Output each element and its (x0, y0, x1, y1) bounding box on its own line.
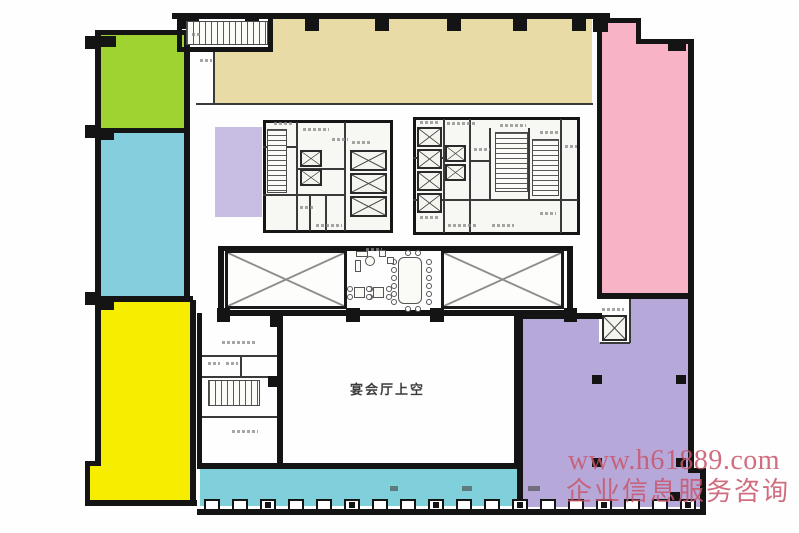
room-label-mark (602, 308, 624, 311)
column (593, 13, 608, 32)
facade-tooth (456, 499, 472, 511)
column (268, 376, 282, 387)
column (270, 316, 282, 327)
partition-line (213, 50, 215, 104)
room-label-mark (274, 122, 292, 125)
partition-line (196, 103, 593, 105)
facade-tooth (540, 499, 556, 511)
zone-northeast (600, 23, 638, 293)
wall-segment (190, 300, 196, 506)
partition-line (469, 119, 471, 233)
zone-inner-west (215, 127, 262, 217)
terrace-mark (390, 486, 398, 491)
room-label-mark (540, 131, 558, 134)
zone-west (100, 133, 186, 296)
elevator-shaft-icon (350, 150, 387, 171)
zone-northwest (100, 35, 186, 128)
partition-line (560, 119, 562, 233)
banquet-hall-label: 宴会厅上空 (350, 379, 440, 398)
room-label-mark (300, 206, 314, 209)
chair (366, 294, 372, 300)
sofa (355, 260, 361, 272)
room-label-mark (474, 148, 490, 151)
facade-tooth (204, 499, 220, 511)
zone-southwest (100, 302, 190, 500)
column (572, 19, 586, 31)
column (375, 19, 389, 31)
column (100, 300, 114, 310)
room-label-mark (316, 224, 342, 227)
chair (405, 250, 411, 256)
chair (391, 267, 397, 273)
staircase-icon (267, 129, 287, 193)
room-label-mark (200, 59, 212, 62)
void-area (441, 250, 564, 309)
void-area (225, 250, 347, 309)
elevator-shaft-icon (417, 127, 442, 147)
staircase-icon (532, 139, 559, 196)
chair (426, 291, 432, 297)
meeting-table (398, 257, 422, 304)
column (100, 131, 114, 140)
wall-segment (85, 500, 197, 506)
zone-north (215, 50, 592, 103)
room-label-mark (332, 138, 348, 141)
wall-segment (268, 13, 273, 52)
zone-northeast (638, 44, 689, 293)
room-label-mark (540, 212, 556, 215)
chair (426, 259, 432, 265)
chair (426, 275, 432, 281)
facade-column-dot (433, 502, 439, 508)
elevator-shaft-icon (300, 169, 322, 186)
wall-segment (514, 313, 520, 466)
room-label-mark (448, 224, 478, 227)
room-label-mark (500, 124, 526, 127)
facade-column-dot (517, 502, 523, 508)
room-label-mark (232, 430, 258, 433)
chair (386, 294, 392, 300)
chair (426, 267, 432, 273)
column (513, 19, 527, 31)
chair (405, 306, 411, 312)
room-label-mark (447, 122, 477, 125)
room-label-mark (192, 33, 202, 36)
wall-segment (184, 30, 190, 300)
partition-line (296, 122, 298, 231)
wall-segment (95, 30, 187, 35)
column (100, 36, 116, 47)
column (592, 375, 602, 384)
side-table (354, 287, 365, 298)
room-label-mark (492, 224, 514, 227)
wall-segment (567, 246, 573, 316)
column (676, 375, 686, 384)
column (305, 19, 319, 31)
room-label-mark (226, 362, 238, 365)
column (447, 19, 461, 31)
staircase-icon (208, 380, 260, 406)
column (564, 308, 577, 322)
elevator-shaft-icon (417, 171, 442, 191)
partition-line (263, 194, 344, 196)
elevator-shaft-icon (350, 196, 387, 217)
terrace-mark (528, 486, 540, 491)
wall-segment (177, 47, 273, 52)
room-label-mark (352, 141, 370, 144)
partition-line (202, 376, 277, 378)
room-label-mark (208, 362, 220, 365)
elevator-shaft-icon (602, 315, 627, 341)
terrace-mark (462, 486, 472, 491)
floor-plan: 宴会厅上空 www.h61889.com 企业信息服务咨询 (0, 0, 799, 533)
facade-tooth (288, 499, 304, 511)
chair (391, 275, 397, 281)
facade-tooth (400, 499, 416, 511)
wall-segment (95, 30, 101, 464)
partition-line (489, 128, 491, 200)
room-label-mark (420, 121, 440, 124)
wall-segment (197, 463, 522, 469)
partition-line (528, 128, 530, 200)
wall-segment (597, 293, 694, 299)
column (217, 308, 230, 322)
coffee-table (365, 256, 375, 266)
partition-line (240, 357, 242, 376)
facade-column-dot (265, 502, 271, 508)
column (85, 292, 97, 305)
column (430, 308, 444, 322)
elevator-shaft-icon (300, 150, 322, 167)
column (85, 36, 97, 49)
elevator-shaft-icon (445, 145, 466, 162)
facade-column-dot (349, 502, 355, 508)
partition-line (469, 160, 489, 162)
sofa (379, 250, 386, 257)
chair (386, 286, 392, 292)
facade-tooth (372, 499, 388, 511)
wall-segment (197, 313, 202, 466)
chair (391, 299, 397, 305)
wall-segment (597, 18, 602, 299)
watermark-caption: 企业信息服务咨询 (566, 471, 790, 508)
chair (426, 283, 432, 289)
wall-segment (688, 41, 694, 473)
chair (347, 294, 353, 300)
facade-tooth (484, 499, 500, 511)
room-label-mark (303, 128, 329, 131)
elevator-shaft-icon (350, 173, 387, 194)
chair (426, 299, 432, 305)
wall-segment (277, 313, 283, 466)
wall-segment (172, 13, 610, 19)
side-table (373, 287, 384, 298)
column (346, 308, 360, 322)
partition-line (309, 196, 311, 231)
chair (415, 250, 421, 256)
facade-tooth (232, 499, 248, 511)
partition-line (202, 416, 277, 418)
room-label-mark (222, 341, 256, 344)
chair (347, 286, 353, 292)
column (668, 39, 686, 51)
elevator-shaft-icon (417, 149, 442, 169)
chair (366, 286, 372, 292)
wall-segment (218, 246, 224, 316)
chair (415, 306, 421, 312)
elevator-shaft-icon (417, 193, 442, 213)
room-label-mark (420, 216, 438, 219)
staircase-icon (495, 132, 528, 192)
room-label-mark (565, 145, 577, 148)
elevator-shaft-icon (445, 164, 466, 181)
facade-tooth (316, 499, 332, 511)
sofa (387, 257, 394, 264)
column (85, 125, 97, 138)
